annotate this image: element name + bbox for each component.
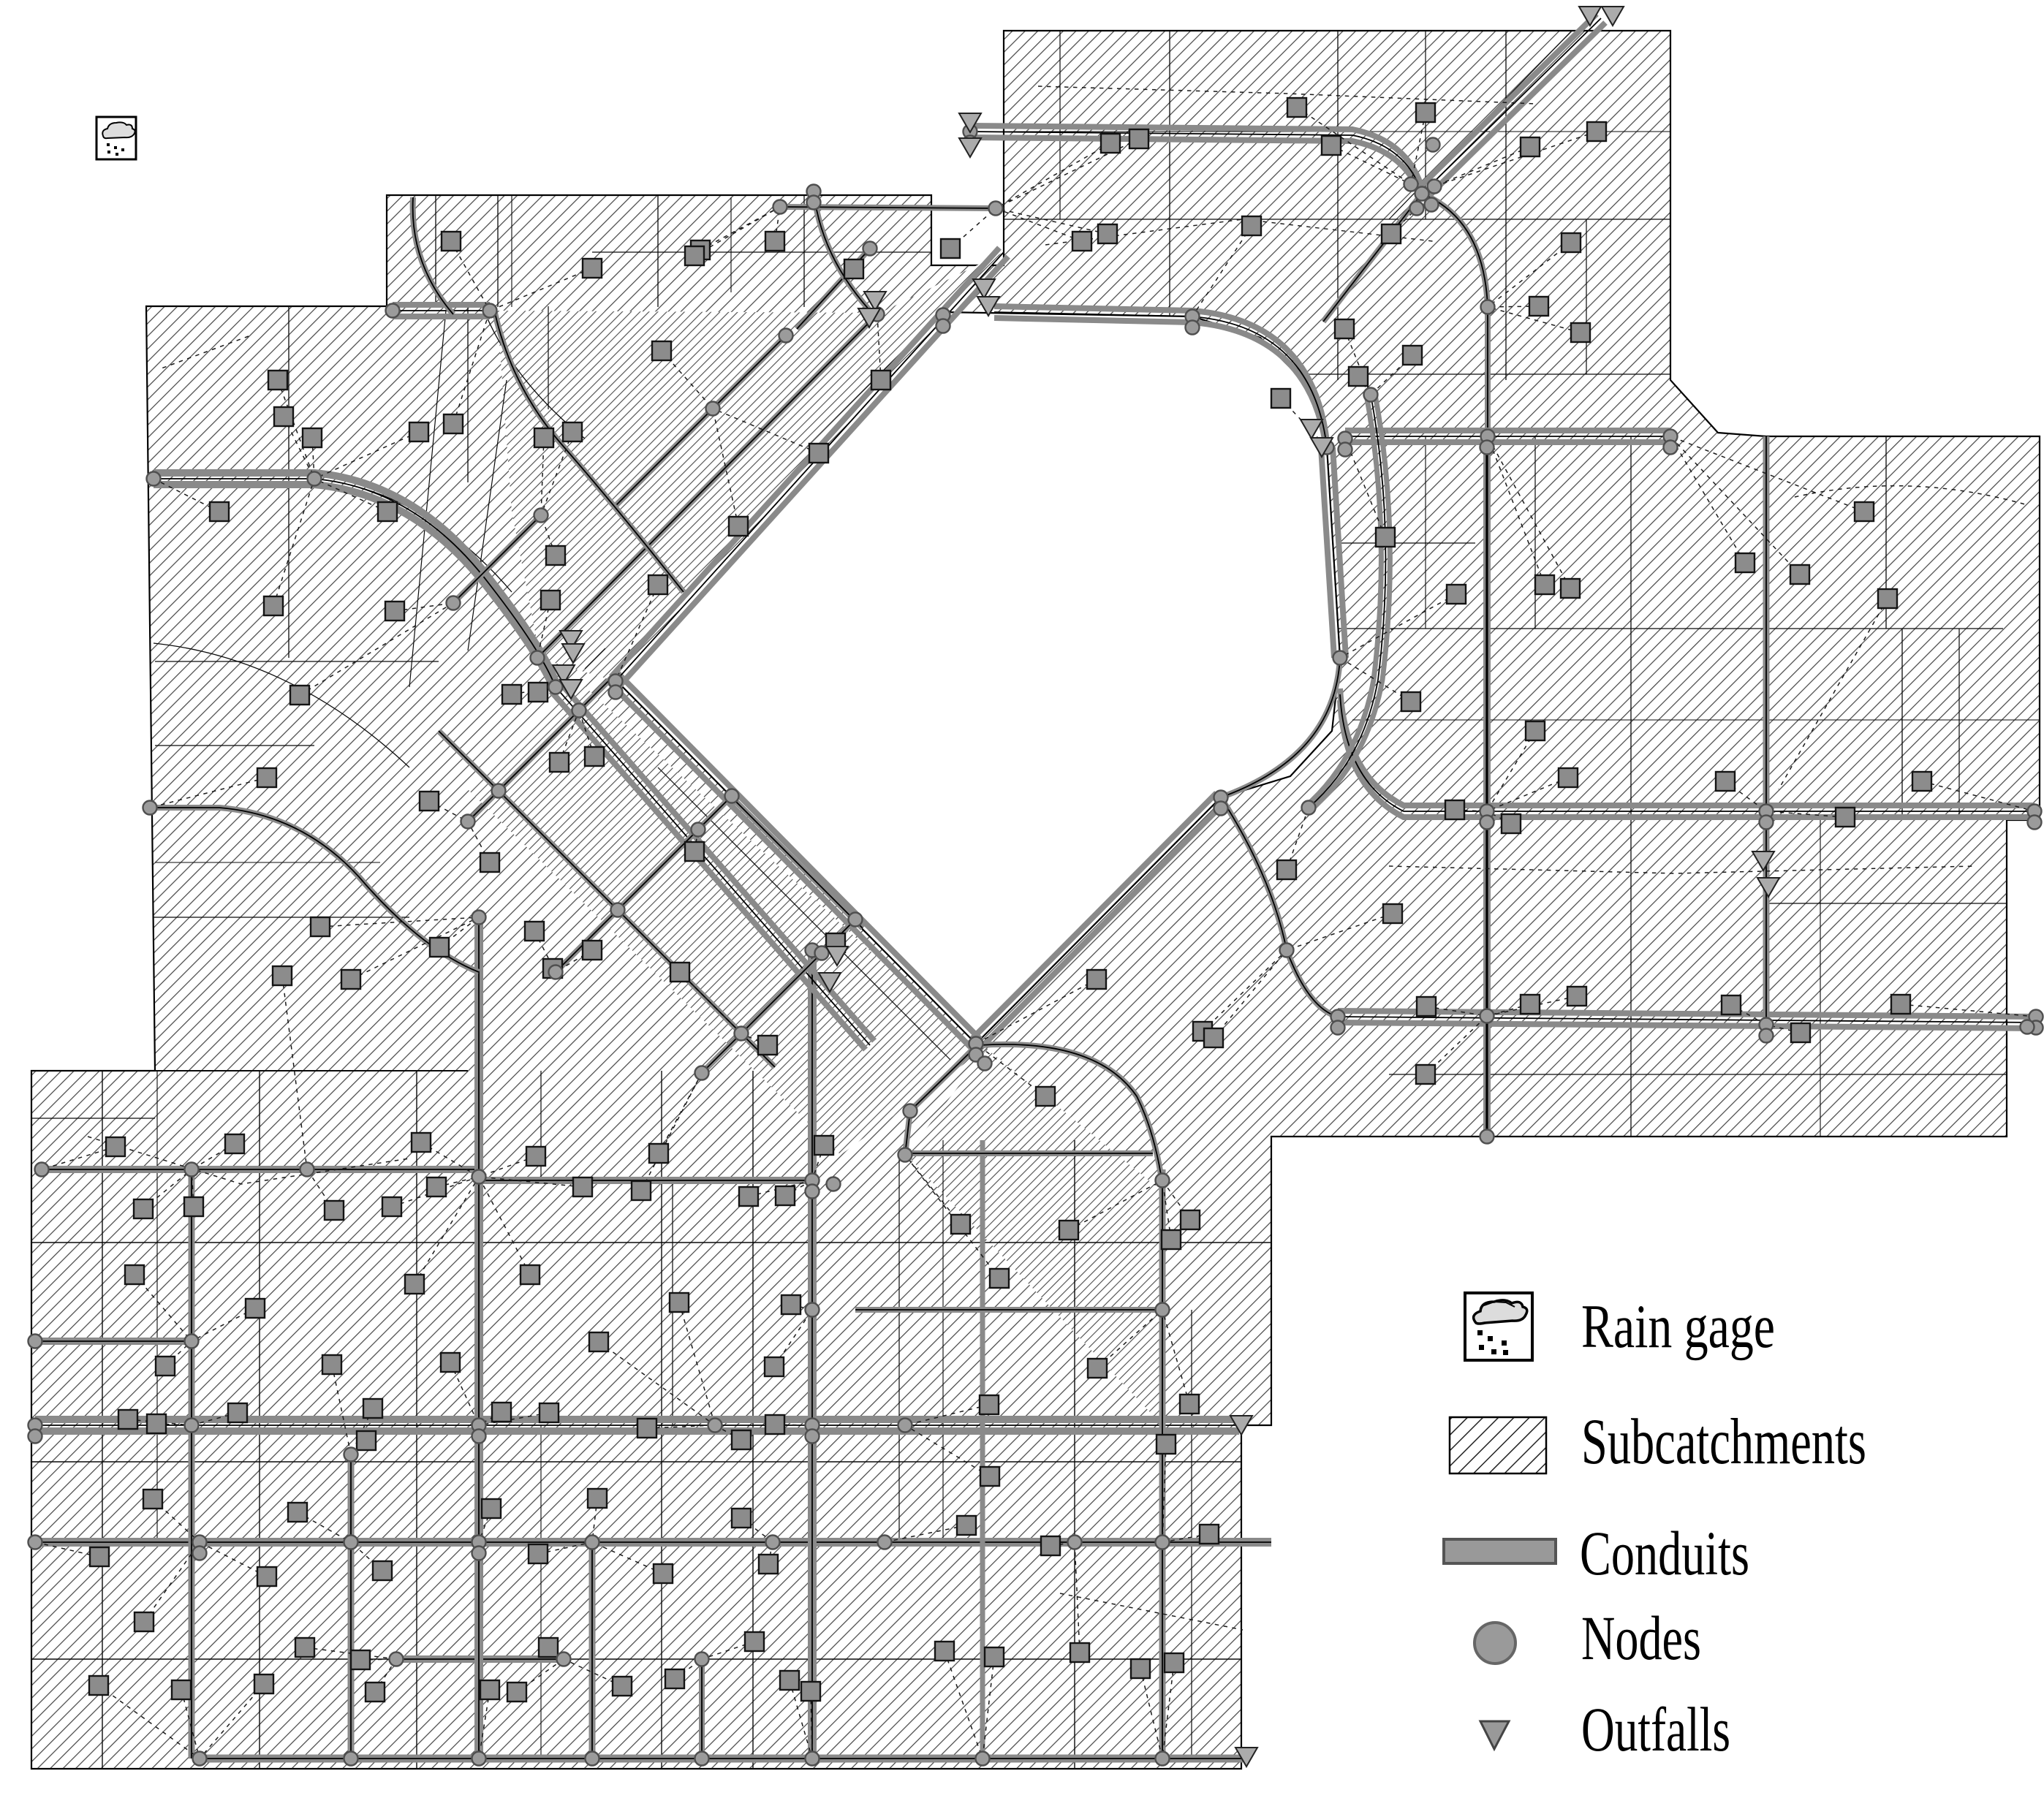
svg-text:Subcatchments: Subcatchments — [1581, 1406, 1866, 1478]
svg-text:Conduits: Conduits — [1580, 1518, 1749, 1588]
svg-text:Rain gage: Rain gage — [1581, 1292, 1775, 1361]
svg-text:Outfalls: Outfalls — [1581, 1694, 1730, 1764]
svg-text:Nodes: Nodes — [1581, 1603, 1701, 1673]
